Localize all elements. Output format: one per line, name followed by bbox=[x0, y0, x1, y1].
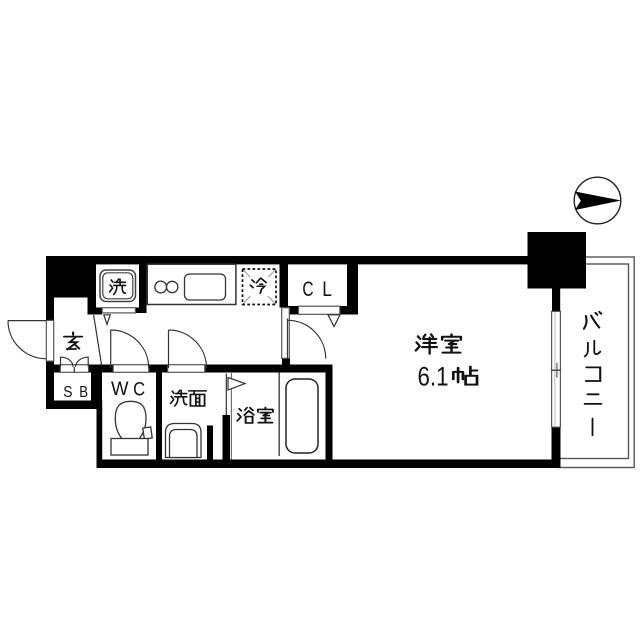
svg-text:6.1: 6.1 bbox=[418, 362, 449, 392]
svg-text:B: B bbox=[79, 384, 88, 401]
svg-text:C: C bbox=[133, 378, 145, 400]
svg-text:C: C bbox=[302, 278, 313, 301]
svg-text:S: S bbox=[63, 384, 72, 401]
svg-text:W: W bbox=[111, 378, 129, 400]
svg-text:L: L bbox=[322, 278, 332, 301]
